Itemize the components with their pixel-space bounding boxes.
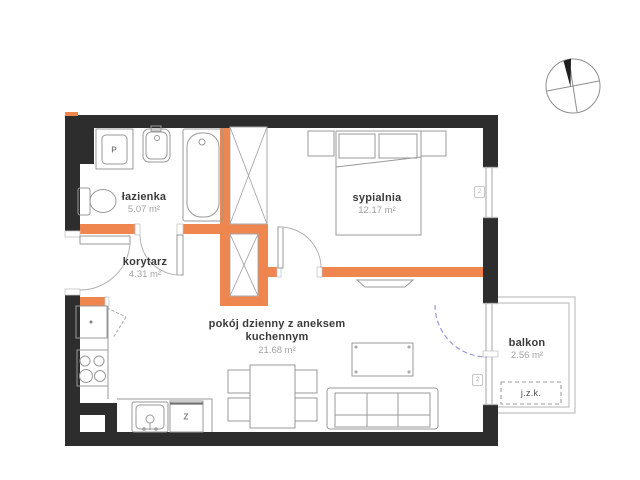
room-area: 5.07 m² [122, 204, 166, 215]
dishwasher-label: Z [184, 413, 189, 422]
nightstand-right [421, 131, 446, 156]
wall-right-upper [483, 115, 498, 167]
room-label-bathroom: łazienka 5.07 m² [122, 191, 166, 215]
floor-plan: łazienka 5.07 m² korytarz 4.31 m² sypial… [0, 0, 640, 480]
dining-table [250, 365, 295, 428]
bathroom-sink [143, 126, 170, 162]
room-area: 12.17 m² [353, 205, 402, 216]
room-name: łazienka [122, 191, 166, 203]
chair [228, 370, 250, 393]
wall-bottom [65, 432, 498, 446]
kitchen-stub-jamb [105, 297, 109, 306]
bed [336, 131, 421, 235]
room-name: pokój dzienny z aneksem kuchennym [207, 318, 347, 344]
bedroom-door-stub-wall [268, 267, 277, 277]
room-area: 2.56 m² [509, 350, 546, 361]
fridge [76, 306, 126, 338]
room-area: 4.31 m² [123, 269, 167, 280]
fridge-door-swing [107, 308, 126, 338]
chair [295, 398, 317, 421]
balcony-door-swing [435, 305, 487, 357]
bathroom-south-wall-right [182, 224, 268, 234]
chair [295, 370, 317, 393]
shaft-wall-vertical [220, 127, 230, 224]
dining-set [228, 365, 317, 428]
wall-right-lower [483, 405, 498, 446]
room-area: 21.68 m² [207, 345, 347, 356]
wall-top [65, 115, 498, 128]
bathtub [183, 129, 223, 221]
room-name: balkon [509, 337, 546, 349]
room-name: korytarz [123, 256, 167, 268]
wall-right-middle [483, 218, 498, 303]
window-marker-living: 2 [472, 374, 483, 386]
kitchen-niche-wall-top [80, 403, 117, 415]
coffee-table [352, 343, 413, 376]
window-marker-bedroom: 2 [474, 186, 485, 198]
kitchen-sink [132, 402, 168, 432]
floor-plan-drawing [0, 0, 640, 480]
stove [77, 350, 108, 386]
entrance-door [65, 231, 130, 295]
shaft-vertical [230, 127, 267, 224]
corridor-shaft-wall-right [258, 234, 268, 296]
washing-machine-label: P [111, 146, 116, 155]
window-marker-text: 2 [478, 189, 481, 195]
ac-unit-label: j.z.k. [521, 388, 541, 398]
bedroom-window [483, 167, 498, 218]
bedroom-living-wall [322, 267, 483, 277]
kitchen-counter [108, 306, 212, 432]
chair [228, 398, 250, 421]
balcony-door [435, 303, 498, 405]
north-needle [564, 59, 572, 88]
bathroom-pillar [78, 127, 94, 164]
compass-rose-icon [546, 59, 600, 114]
corridor-shaft-wall-bottom [220, 296, 268, 306]
room-name: sypialnia [353, 192, 402, 204]
nightstand-left [308, 131, 334, 156]
wall-left-lower [65, 295, 80, 446]
sofa [327, 388, 438, 429]
room-label-balcony: balkon 2.56 m² [509, 337, 546, 361]
shaft-corridor [230, 234, 258, 296]
tv [357, 280, 413, 287]
kitchen-niche-wall-side [105, 415, 117, 432]
room-label-corridor: korytarz 4.31 m² [123, 256, 167, 280]
room-label-living: pokój dzienny z aneksem kuchennym 21.68 … [207, 318, 347, 357]
bathroom-south-wall-left [80, 224, 135, 234]
corner-accent-tick [65, 112, 78, 116]
toilet [78, 188, 116, 215]
room-label-bedroom: sypialnia 12.17 m² [353, 192, 402, 216]
kitchen-stub-wall [78, 297, 105, 306]
window-marker-text: 2 [476, 377, 479, 383]
corridor-shaft-wall-left [220, 234, 230, 296]
